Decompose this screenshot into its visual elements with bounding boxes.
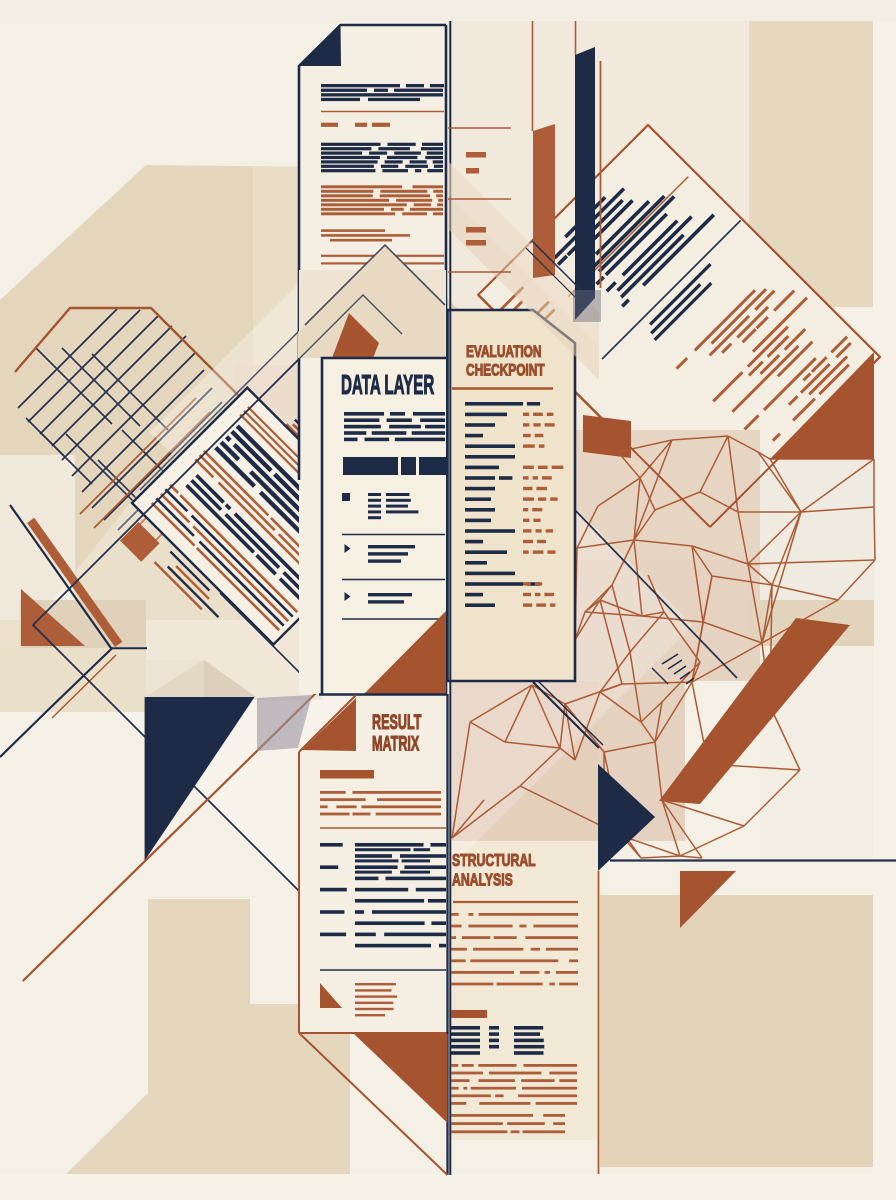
svg-text:EVALUATION: EVALUATION bbox=[466, 343, 541, 362]
svg-text:ANALYSIS: ANALYSIS bbox=[452, 870, 513, 890]
svg-text:MATRIX: MATRIX bbox=[372, 731, 420, 755]
svg-text:CHECKPOINT: CHECKPOINT bbox=[466, 362, 545, 381]
svg-text:STRUCTURAL: STRUCTURAL bbox=[452, 851, 536, 871]
svg-text:DATA LAYER: DATA LAYER bbox=[341, 369, 434, 400]
